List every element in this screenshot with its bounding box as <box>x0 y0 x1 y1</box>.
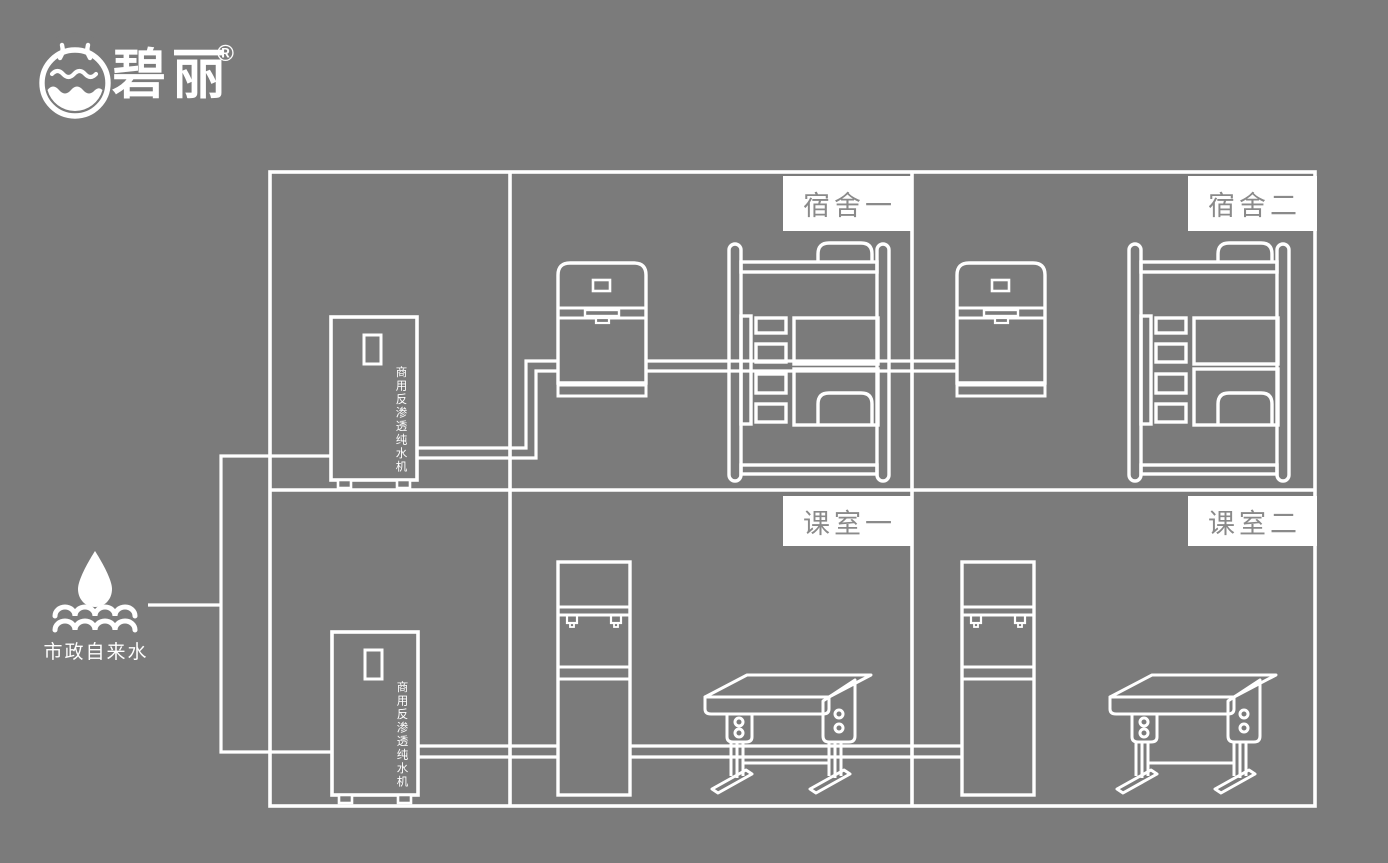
municipal-water-label: 市政自来水 <box>33 637 159 664</box>
classroom-branch-pipe <box>415 746 968 757</box>
bunk-bed-2 <box>1129 243 1289 481</box>
brand-name: 碧丽 <box>112 46 232 105</box>
building-grid <box>270 172 1315 806</box>
water-source-icon <box>55 551 135 630</box>
classroom-water-dispenser-2 <box>962 562 1034 795</box>
school-desk-2 <box>1110 675 1276 793</box>
diagram-lineart <box>0 0 1388 863</box>
room-label-classroom-2: 课室二 <box>1188 496 1317 546</box>
ro-machine-lower-label: 商用反渗透纯水机 <box>395 681 407 773</box>
dorm-water-dispenser-1 <box>558 263 646 396</box>
brand-emblem-icon <box>42 37 108 116</box>
water-waves-icon <box>55 621 135 630</box>
diagram-canvas: 碧丽 ® 市政自来水 商用反渗透纯水机 商用反渗透纯水机 宿舍一 宿舍二 课室一… <box>0 0 1388 863</box>
supply-pipe <box>148 456 336 752</box>
ro-machine-upper-label: 商用反渗透纯水机 <box>394 366 406 458</box>
room-label-classroom-1: 课室一 <box>783 496 912 546</box>
water-waves-icon <box>55 607 135 616</box>
room-label-dorm-1: 宿舍一 <box>783 176 912 231</box>
room-label-dorm-2: 宿舍二 <box>1188 176 1317 231</box>
dorm-branch-pipe <box>417 361 965 458</box>
classroom-water-dispenser-1 <box>558 562 630 795</box>
water-drop-icon <box>78 551 112 607</box>
registered-trademark-mark: ® <box>217 40 234 67</box>
school-desk-1 <box>705 675 871 793</box>
dorm-water-dispenser-2 <box>957 263 1045 396</box>
